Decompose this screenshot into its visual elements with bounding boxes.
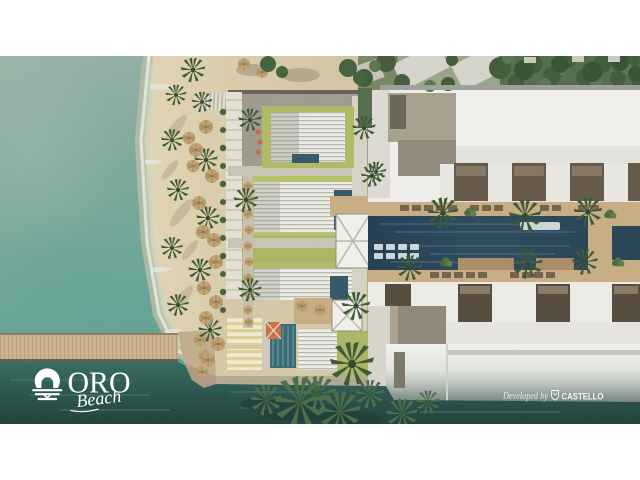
svg-text:CASTELLO: CASTELLO [562,392,604,403]
svg-text:Developed by: Developed by [502,391,548,402]
